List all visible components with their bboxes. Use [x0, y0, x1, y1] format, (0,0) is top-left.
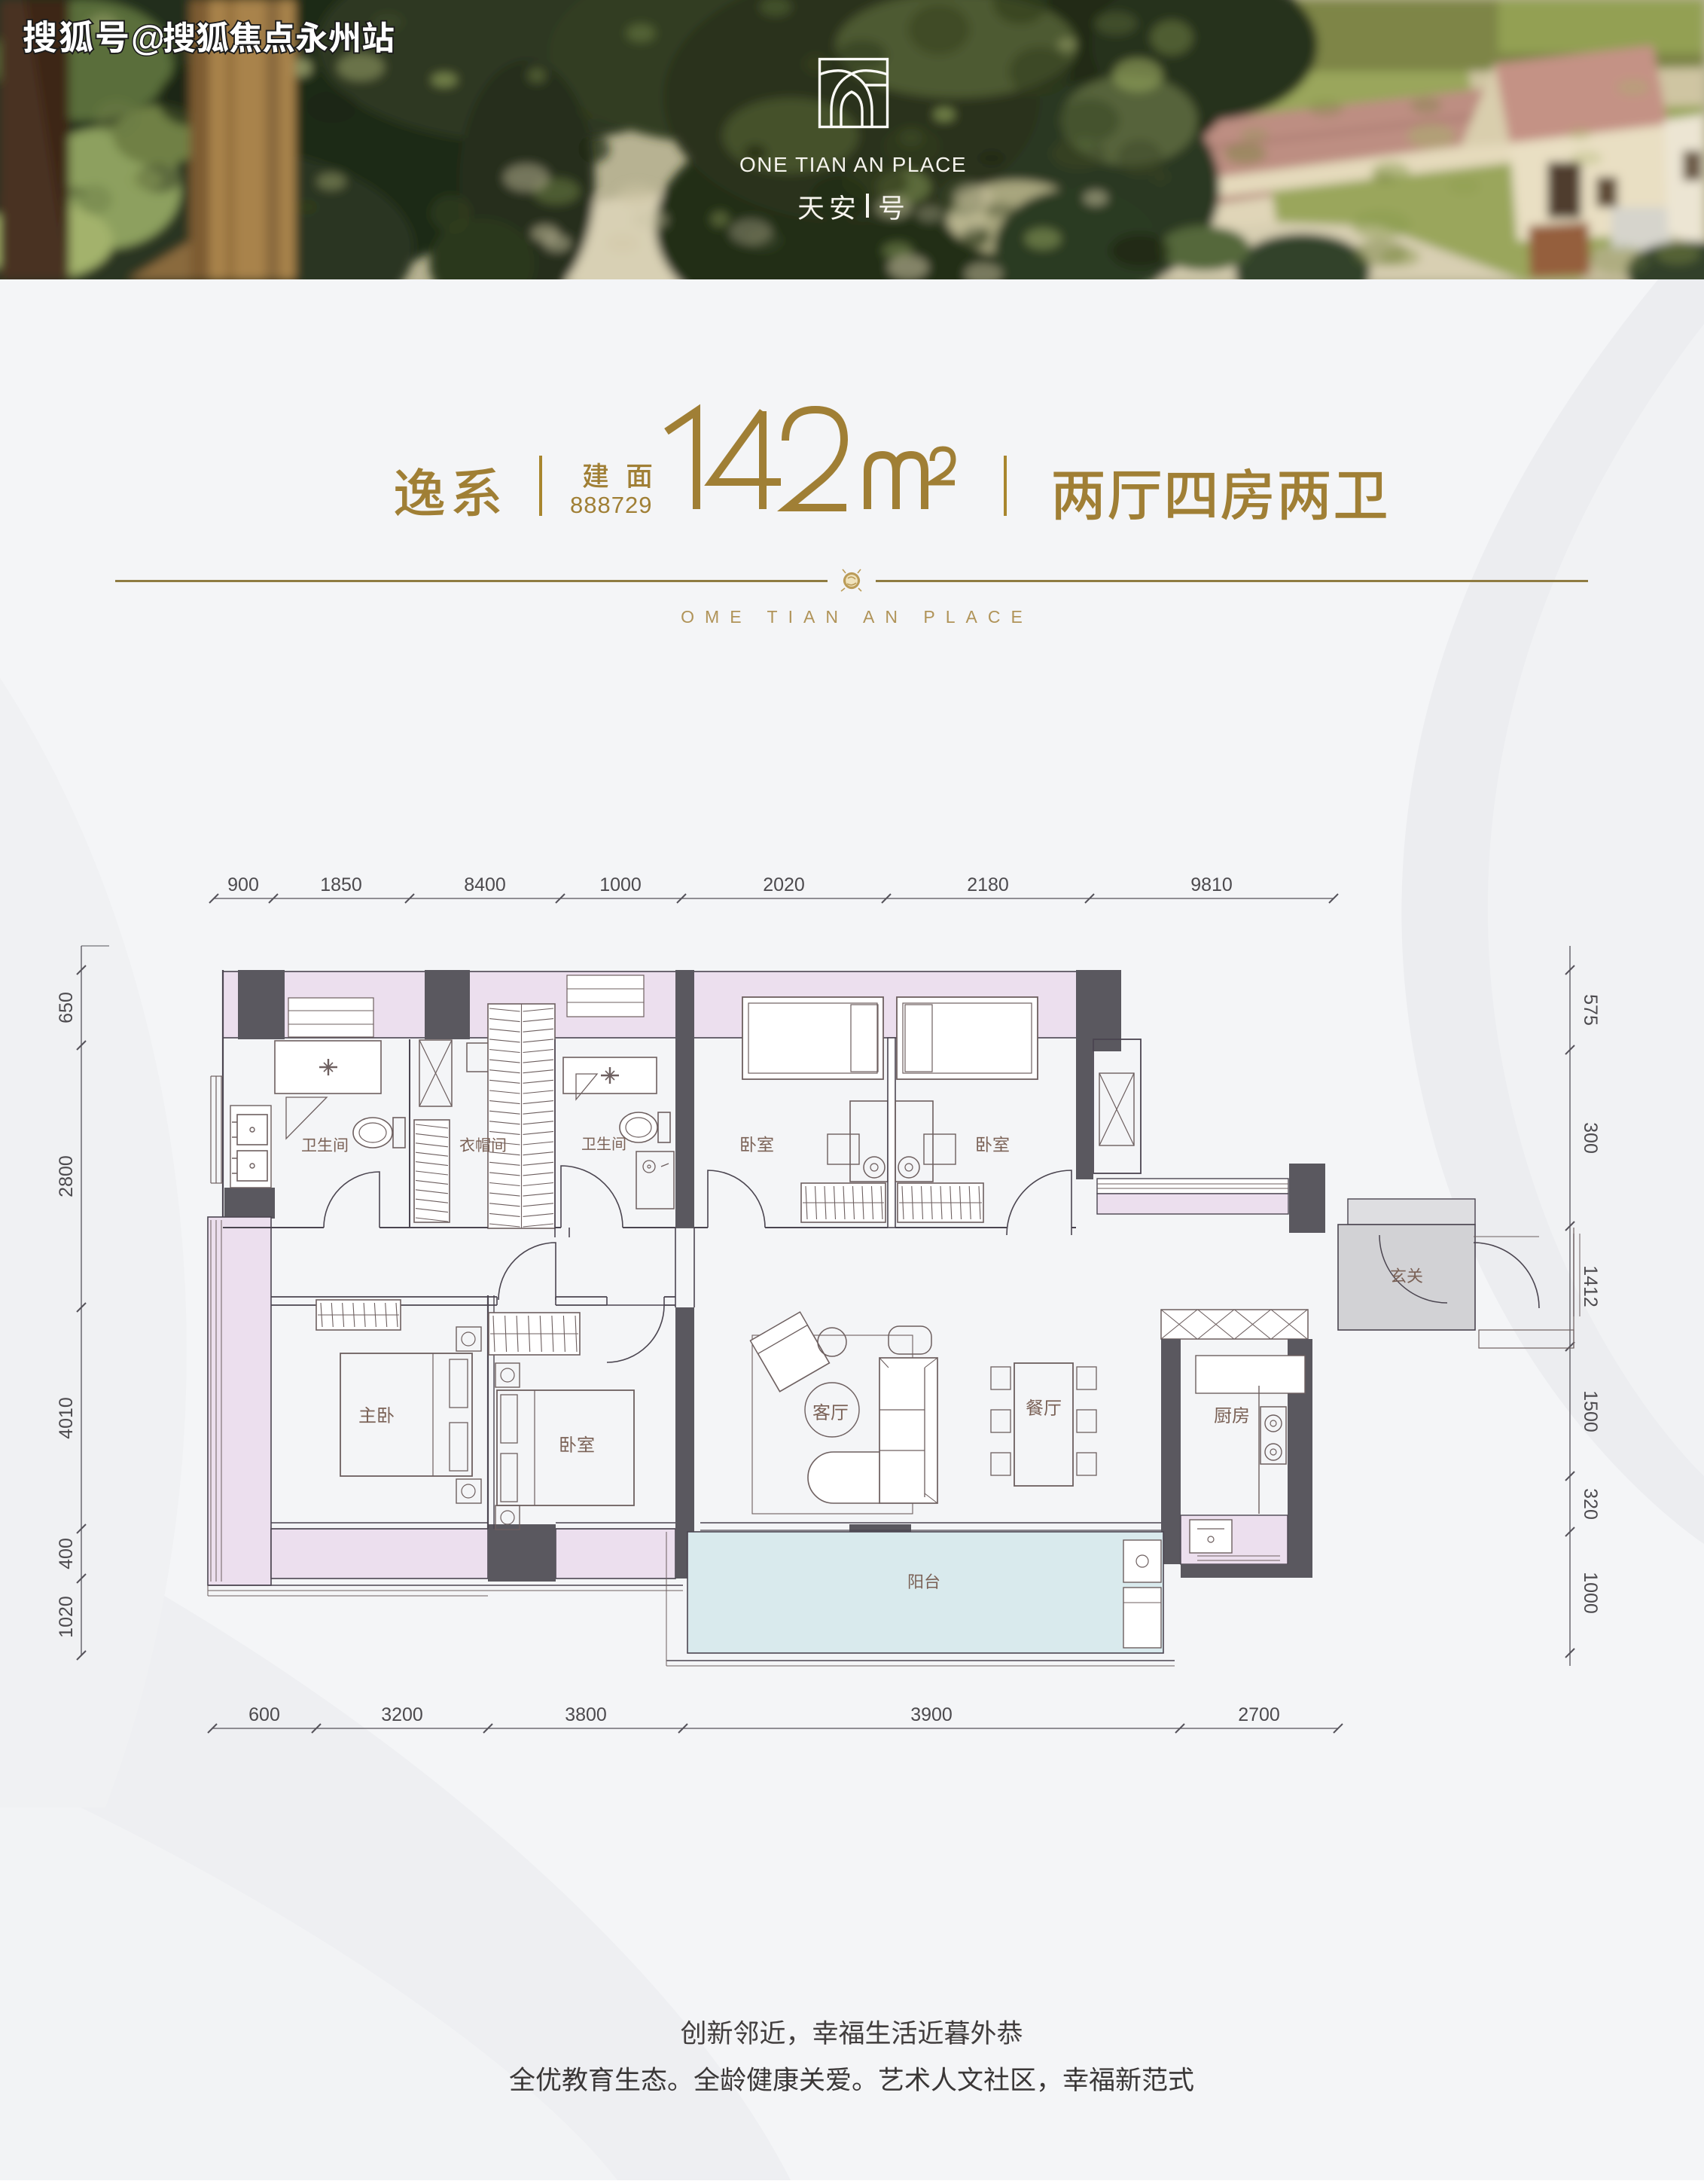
svg-text:8400: 8400 [464, 874, 506, 895]
svg-text:1020: 1020 [56, 1596, 77, 1638]
svg-text:@: @ [131, 18, 165, 57]
svg-text:1000: 1000 [599, 874, 642, 895]
svg-text:1850: 1850 [320, 874, 362, 895]
svg-text:ONE TIAN AN PLACE: ONE TIAN AN PLACE [739, 153, 967, 176]
svg-text:3200: 3200 [381, 1704, 423, 1725]
svg-text:1000: 1000 [1580, 1572, 1601, 1614]
svg-text:3900: 3900 [910, 1704, 953, 1725]
svg-text:1412: 1412 [1580, 1265, 1601, 1307]
svg-text:2020: 2020 [763, 874, 805, 895]
svg-text:3800: 3800 [565, 1704, 607, 1725]
svg-text:1500: 1500 [1580, 1390, 1601, 1432]
svg-text:2180: 2180 [967, 874, 1009, 895]
svg-text:888729: 888729 [570, 492, 652, 518]
svg-text:2800: 2800 [56, 1155, 77, 1197]
svg-text:600: 600 [248, 1704, 280, 1725]
svg-text:OME TIAN AN PLACE: OME TIAN AN PLACE [681, 607, 1033, 627]
svg-text:400: 400 [56, 1538, 77, 1569]
svg-text:9810: 9810 [1190, 874, 1233, 895]
svg-text:900: 900 [227, 874, 259, 895]
svg-text:2700: 2700 [1238, 1704, 1280, 1725]
svg-text:320: 320 [1580, 1488, 1601, 1520]
svg-text:300: 300 [1580, 1122, 1601, 1154]
svg-text:4010: 4010 [56, 1397, 77, 1439]
svg-text:575: 575 [1580, 994, 1601, 1026]
svg-text:650: 650 [56, 992, 77, 1023]
